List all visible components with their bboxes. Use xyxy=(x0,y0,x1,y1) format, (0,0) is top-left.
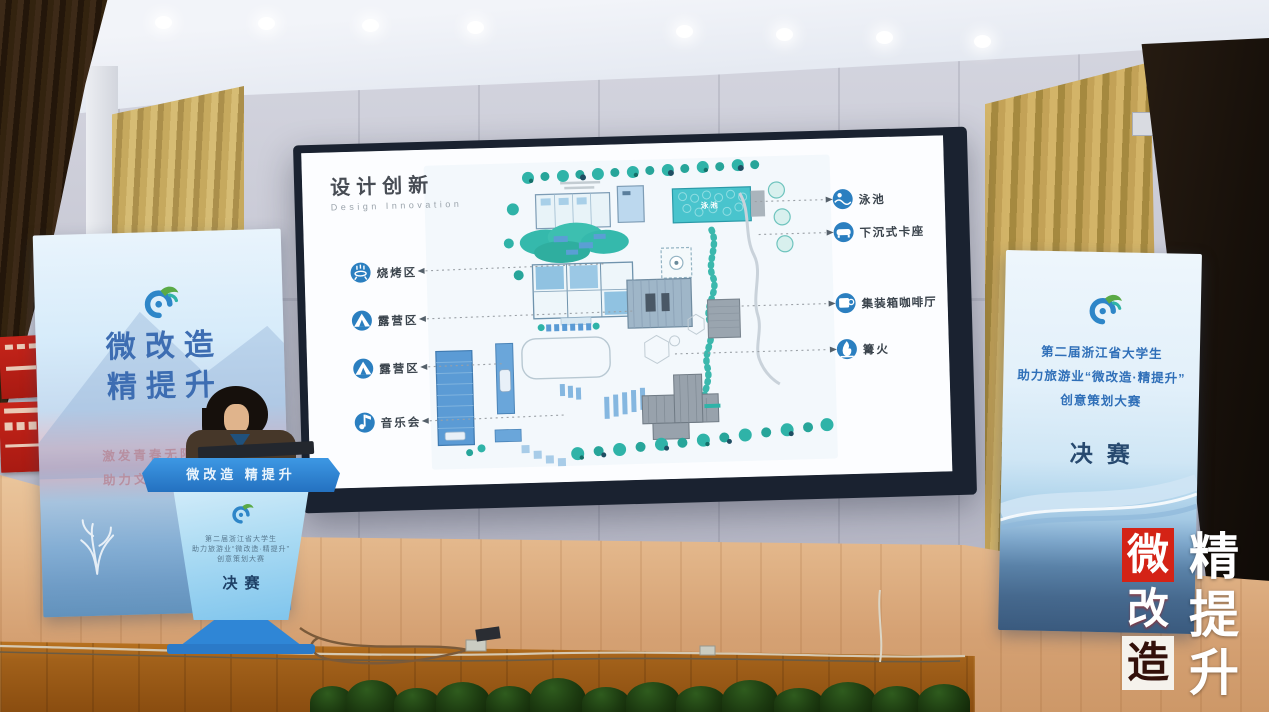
seal-char: 改 xyxy=(1122,582,1174,636)
seal-char: 微 xyxy=(1122,528,1174,582)
banner-title-line1: 微改造 xyxy=(35,324,284,371)
right-banner-line3: 创意策划大赛 xyxy=(1003,387,1199,415)
seal-column-left: 微 改 造 xyxy=(1122,528,1174,690)
right-banner-line2: 助力旅游业“微改造·精提升” xyxy=(1003,363,1199,391)
podium-header-band: 微改造 精提升 xyxy=(142,458,340,492)
seal-watermark: 微 改 造 精 提 升 xyxy=(1122,528,1268,710)
brand-logo xyxy=(34,279,283,331)
seal-column-right: 精 提 升 xyxy=(1184,528,1244,702)
wave-graphic xyxy=(1000,460,1197,534)
seal-char: 提 xyxy=(1184,586,1244,644)
podium-base-plate xyxy=(167,644,315,654)
podium-header-text: 微改造 精提升 xyxy=(186,467,296,482)
brand-logo xyxy=(1004,288,1201,335)
seal-char: 造 xyxy=(1122,636,1174,690)
coral-branch-graphic xyxy=(50,505,142,577)
auditorium-stage-photo: 设计创新 Design Innovation xyxy=(0,0,1269,712)
seal-char: 精 xyxy=(1184,528,1244,586)
seal-char: 升 xyxy=(1184,644,1244,702)
